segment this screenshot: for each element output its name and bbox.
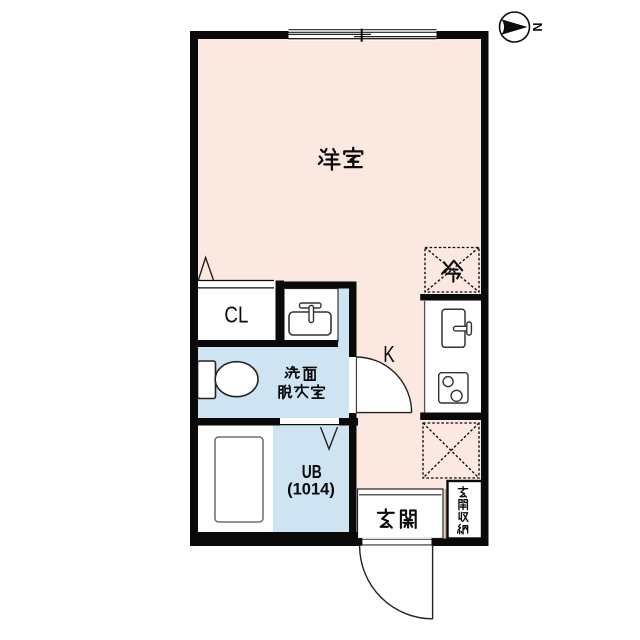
svg-text:UB: UB bbox=[302, 462, 322, 482]
svg-text:CL: CL bbox=[224, 302, 248, 328]
svg-text:N: N bbox=[530, 22, 544, 31]
svg-text:(1014): (1014) bbox=[287, 481, 335, 499]
svg-text:K: K bbox=[383, 341, 395, 367]
